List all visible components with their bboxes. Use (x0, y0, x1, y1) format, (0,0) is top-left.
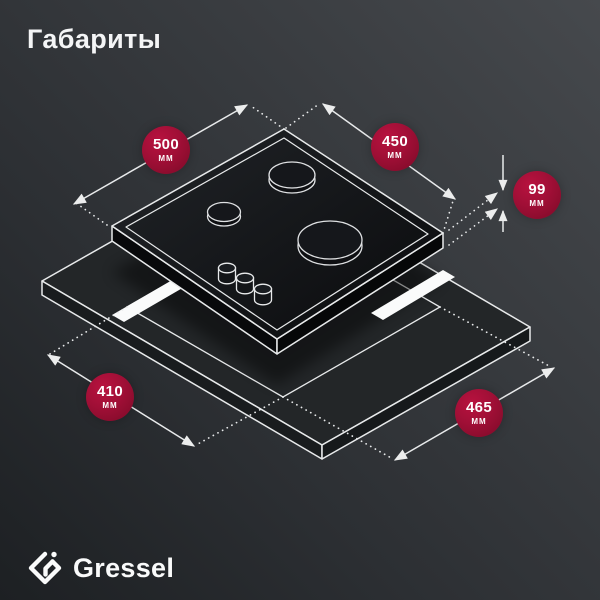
dimension-value: 99 (528, 182, 545, 197)
burner-large (298, 221, 362, 265)
dimension-unit: мм (529, 199, 544, 208)
knob-2 (237, 273, 254, 294)
dimension-value: 450 (382, 134, 408, 149)
burner-top (269, 162, 315, 193)
gressel-logo-icon (26, 549, 64, 587)
dimension-value: 465 (466, 400, 492, 415)
dimension-value: 410 (97, 384, 123, 399)
brand-name: Gressel (73, 553, 174, 584)
dimension-badge-hob-width: 500 мм (142, 126, 190, 174)
burner-left (208, 203, 241, 227)
infographic-page: { "title": "Габариты", "brand": { "name"… (0, 0, 600, 600)
dimension-unit: мм (158, 154, 173, 163)
dimension-badge-hob-height: 99 мм (513, 171, 561, 219)
dimension-value: 500 (153, 137, 179, 152)
dimension-badge-hob-depth: 450 мм (371, 123, 419, 171)
dimension-diagram (0, 0, 600, 600)
knob-1 (219, 263, 236, 284)
knob-3 (255, 284, 272, 305)
dimension-unit: мм (102, 401, 117, 410)
dimension-unit: мм (471, 417, 486, 426)
dimension-badge-cutout-depth: 410 мм (86, 373, 134, 421)
dimension-unit: мм (387, 151, 402, 160)
brand-logo: Gressel (26, 549, 174, 587)
dimension-badge-cutout-width: 465 мм (455, 389, 503, 437)
